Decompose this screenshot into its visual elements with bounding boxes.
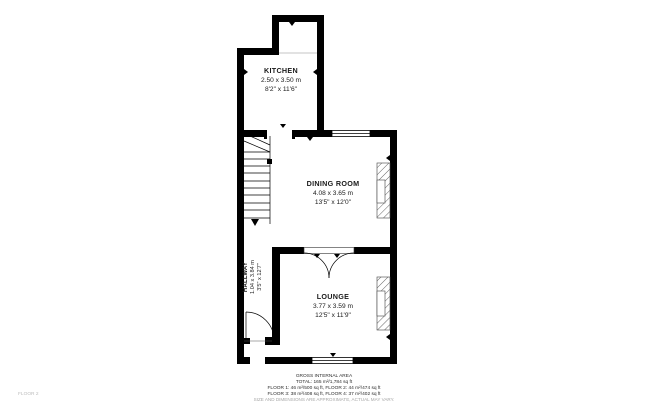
hallway-name: HALLWAY — [243, 262, 249, 292]
hallway-imperial: 3'5" x 12'7" — [257, 263, 263, 291]
chimney-dining — [377, 163, 390, 218]
total-area: TOTAL: 165 m²/1,784 sq ft — [296, 379, 353, 385]
window-dining — [332, 131, 370, 137]
room-label-dining: DINING ROOM 4.08 x 3.65 m 13'5" x 12'0" — [307, 179, 360, 206]
wall-bottom-right — [353, 357, 397, 364]
wall-divider-dining-lounge-right — [354, 247, 390, 254]
staircase — [244, 136, 270, 226]
lounge-imperial: 12'5" x 11'9" — [315, 312, 351, 319]
wall-bottom-left-stub — [237, 357, 250, 364]
footer-area-summary: GROSS INTERNAL AREA TOTAL: 165 m²/1,784 … — [254, 373, 395, 402]
floorplan-page: KITCHEN 2.50 x 3.50 m 8'2" x 11'6" DININ… — [0, 0, 650, 406]
wall-kitchen-right — [317, 15, 324, 137]
wall-kitchen-bottom-right — [292, 130, 332, 137]
wall-kitchen-ext-top — [272, 15, 324, 22]
stair-direction-arrow — [251, 219, 259, 226]
dining-imperial: 13'5" x 12'0" — [315, 199, 352, 206]
dining-name: DINING ROOM — [307, 179, 360, 188]
kitchen-metric: 2.50 x 3.50 m — [261, 77, 301, 84]
stair-winder-1 — [244, 141, 270, 152]
disclaimer: SIZE AND DIMENSIONS ARE APPROXIMATE, ACT… — [254, 397, 395, 402]
kitchen-imperial: 8'2" x 11'6" — [265, 86, 298, 93]
room-label-hallway: HALLWAY 1.04 x 3.84 m 3'5" x 12'7" — [243, 260, 263, 294]
wall-left-main — [237, 48, 244, 364]
gross-internal-area-title: GROSS INTERNAL AREA — [296, 373, 353, 379]
room-label-lounge: LOUNGE 3.77 x 3.59 m 12'5" x 11'9" — [313, 292, 353, 319]
wall-kitchen-bottom-left — [237, 130, 267, 137]
floor-label: FLOOR 2 — [18, 391, 39, 397]
dining-metric: 4.08 x 3.65 m — [313, 190, 353, 197]
wall-bottom-mid — [265, 357, 312, 364]
hallway-metric: 1.04 x 3.84 m — [250, 260, 256, 294]
jamb-stairs — [267, 159, 272, 164]
kitchen-name: KITCHEN — [264, 66, 298, 75]
wall-hallway-right — [272, 247, 280, 338]
jamb-kitchen-door-left — [264, 130, 267, 139]
lounge-metric: 3.77 x 3.59 m — [313, 303, 353, 310]
room-label-kitchen: KITCHEN 2.50 x 3.50 m 8'2" x 11'6" — [261, 66, 301, 93]
jamb-kitchen-door-right — [292, 130, 295, 139]
chimney-lounge — [377, 277, 390, 330]
floors-line-a: FLOOR 1: 46 m²/500 sq ft, FLOOR 2: 44 m²… — [267, 385, 381, 391]
lounge-name: LOUNGE — [317, 292, 350, 301]
window-lounge — [312, 358, 353, 364]
front-door — [244, 312, 274, 341]
floorplan-drawing: KITCHEN 2.50 x 3.50 m 8'2" x 11'6" DININ… — [0, 0, 650, 406]
wall-right-main — [390, 130, 397, 364]
french-doors-dining-lounge — [304, 248, 354, 279]
